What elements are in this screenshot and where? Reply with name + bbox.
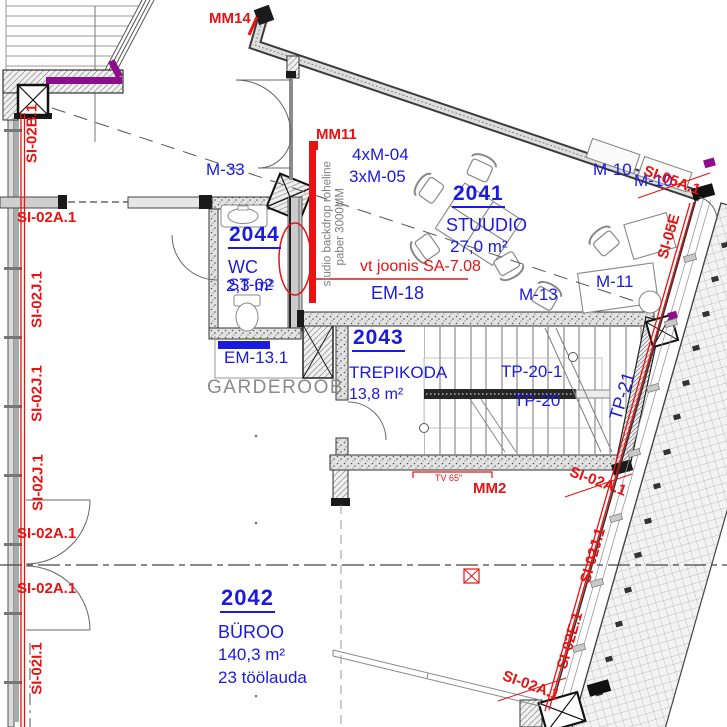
equip-label-m10-1: M-10 (593, 161, 632, 178)
equip-label-em18: EM-18 (371, 284, 424, 302)
room-number-2043: 2043 (352, 327, 405, 352)
code-si02b1: SI-02B.1 (25, 99, 40, 169)
equip-label-tp201: TP-20-1 (501, 363, 562, 380)
code-si02a1-top: SI-02A.1 (17, 210, 76, 225)
code-si02j1-left-1: SI-02J.1 (30, 265, 45, 335)
equip-label-em131: EM-13.1 (224, 349, 288, 366)
code-si02a1-mid1: SI-02A.1 (17, 526, 76, 541)
room-note-2042: 23 töölauda (218, 669, 307, 686)
code-si02j1-left-2: SI-02J.1 (30, 359, 45, 429)
note-drawing-ref: vt joonis SA-7.08 (360, 259, 481, 275)
left-curtain-wall (4, 81, 22, 727)
code-si02i1: SI-02I.1 (30, 634, 45, 704)
equip-label-m13: M-13 (519, 286, 558, 303)
floorplan: M-33 2044 WC 2,3 m² ST-02 EM-13.1 4xM-04… (0, 0, 727, 727)
note-garderoob: GARDEROOB (207, 378, 344, 397)
marker-label-mm11: MM11 (316, 127, 357, 142)
room-area-2041: 27,0 m² (450, 238, 508, 255)
room-name-2043: TREPIKODA (349, 364, 447, 381)
marker-label-mm2: MM2 (473, 481, 506, 496)
note-backdrop-line2: paber 3000MM (335, 177, 347, 277)
top-left-wall (3, 59, 123, 120)
note-backdrop-line1: studio backdrop roheline (322, 149, 334, 299)
room-number-2041: 2041 (452, 183, 505, 208)
equip-label-m33: M-33 (206, 161, 245, 178)
equip-label-m11: M-11 (596, 273, 633, 290)
marker-label-tv: TV 65" (435, 474, 462, 483)
code-si02j1-left-3: SI-02J.1 (31, 448, 46, 518)
marker-label-mm14: MM14 (209, 11, 251, 26)
room-area-2042: 140,3 m² (218, 646, 285, 663)
room-name-2044: WC (228, 258, 258, 276)
equip-label-m05: 3xM-05 (349, 168, 406, 185)
room-number-2044: 2044 (228, 224, 281, 249)
equip-label-tp20: TP-20 (514, 392, 560, 409)
equip-label-m04: 4xM-04 (352, 146, 409, 163)
room-name-2041: STUUDIO (446, 216, 527, 234)
code-si02a1-mid2: SI-02A.1 (17, 581, 76, 596)
room-name-2042: BÜROO (218, 623, 284, 641)
studio-west-wall (236, 71, 296, 180)
room-number-2042: 2042 (220, 587, 275, 613)
room-area-2043: 13,8 m² (349, 387, 403, 403)
equip-label-st02: ST-02 (228, 276, 273, 293)
